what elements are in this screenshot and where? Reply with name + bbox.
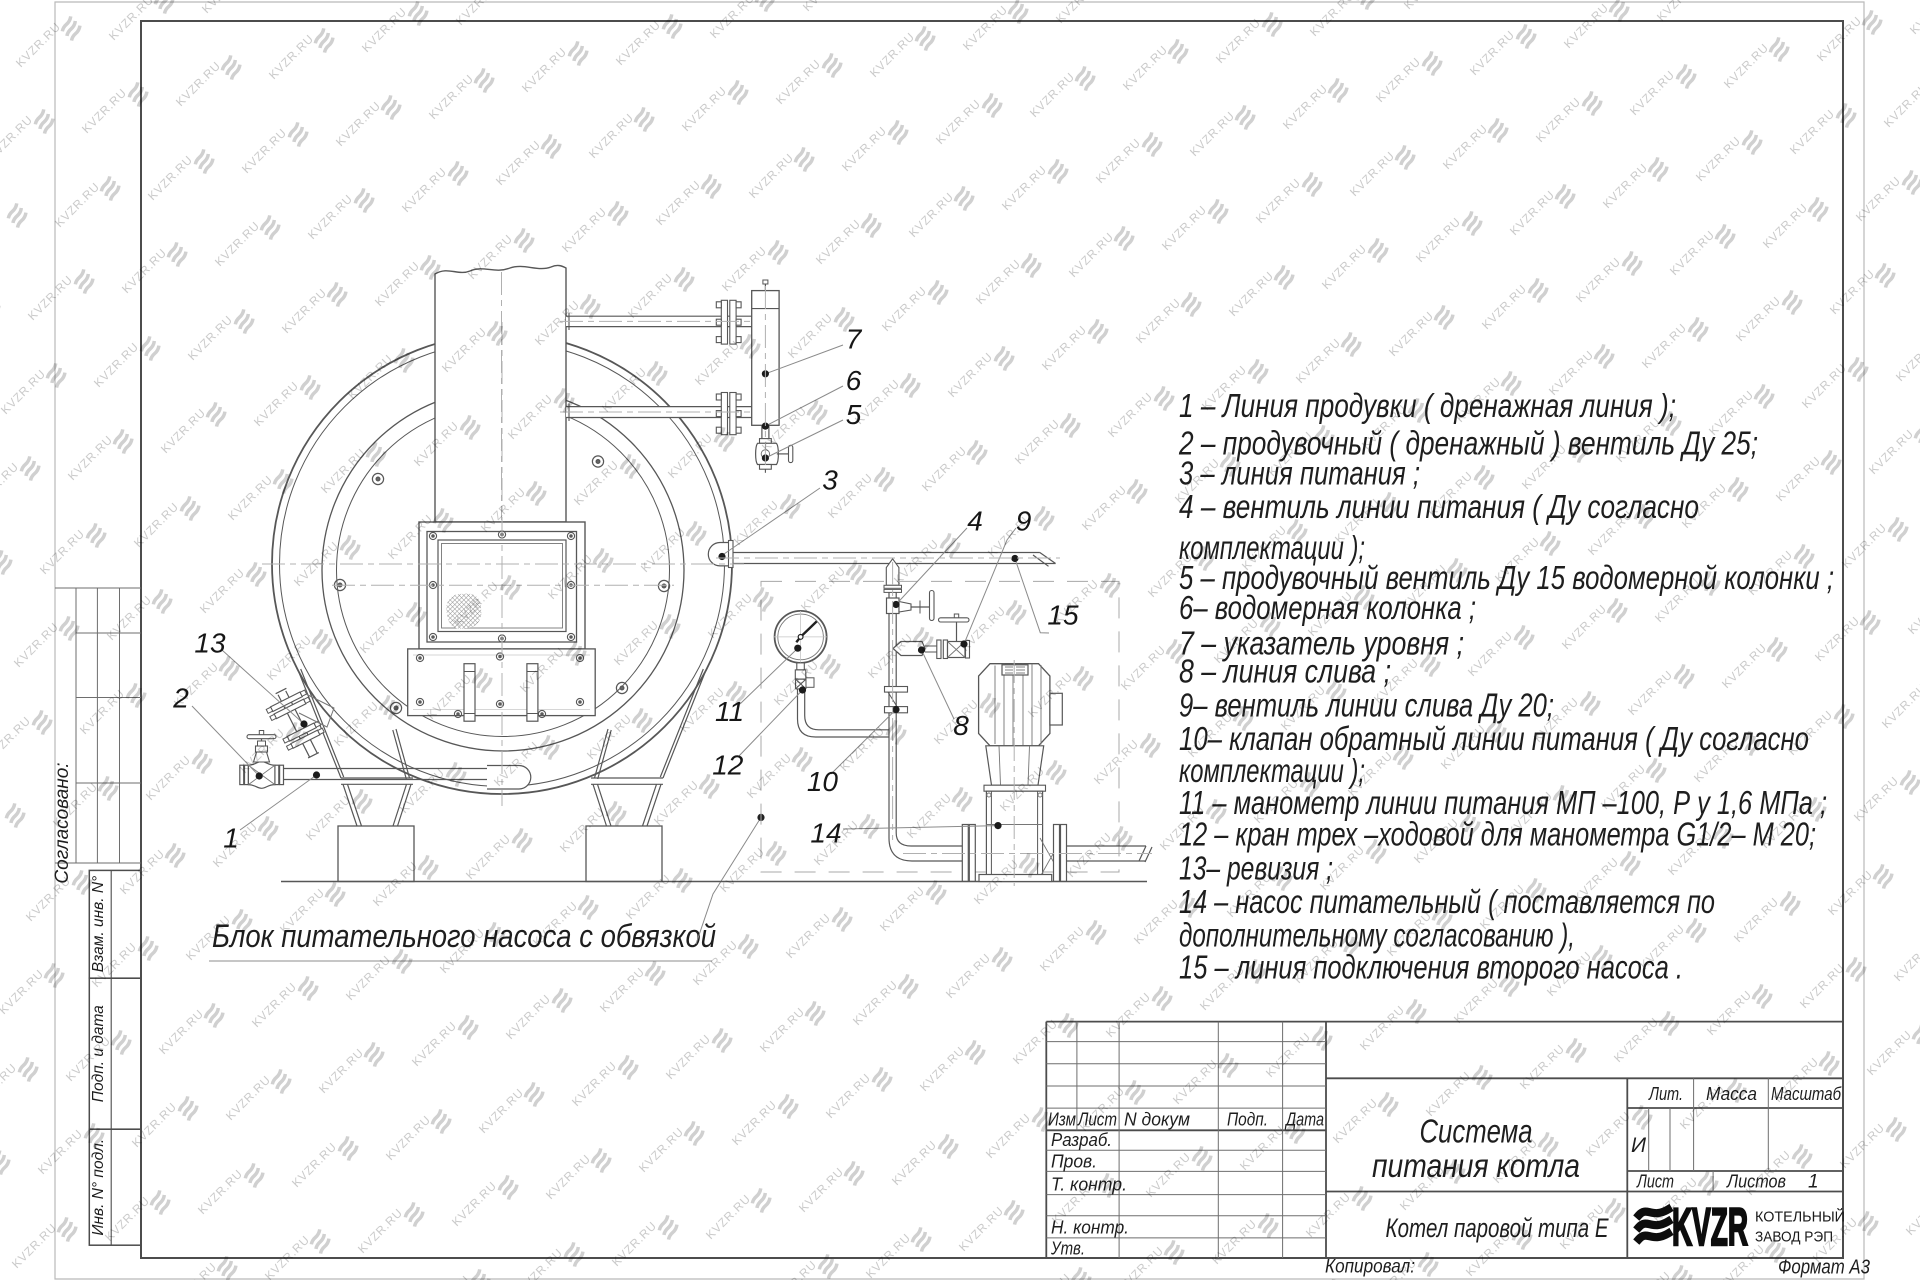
svg-text:13: 13 bbox=[194, 627, 226, 658]
svg-text:И: И bbox=[1631, 1134, 1647, 1157]
svg-text:12 – кран трех –ходовой для: 12 – кран трех –ходовой для манометра G1… bbox=[1179, 816, 1816, 853]
svg-text:N докум: N докум bbox=[1124, 1110, 1190, 1130]
svg-text:Взам. инв. N°: Взам. инв. N° bbox=[90, 876, 107, 972]
svg-text:Подп.: Подп. bbox=[1227, 1110, 1268, 1130]
svg-text:Система: Система bbox=[1420, 1113, 1533, 1150]
svg-text:4: 4 bbox=[967, 505, 983, 536]
svg-text:Изм: Изм bbox=[1048, 1110, 1076, 1130]
svg-text:KVZR: KVZR bbox=[1672, 1198, 1748, 1257]
svg-text:Инв. N° подл.: Инв. N° подл. bbox=[90, 1139, 107, 1236]
svg-text:8 – линия слива ;: 8 – линия слива ; bbox=[1179, 653, 1391, 690]
svg-text:Лист: Лист bbox=[1636, 1172, 1674, 1192]
svg-text:Лит.: Лит. bbox=[1648, 1084, 1683, 1104]
svg-text:1: 1 bbox=[1808, 1172, 1819, 1193]
svg-text:7: 7 bbox=[846, 323, 863, 354]
svg-text:12: 12 bbox=[712, 749, 744, 780]
svg-text:КОТЕЛЬНЫЙ: КОТЕЛЬНЫЙ bbox=[1755, 1208, 1845, 1226]
svg-text:Пров.: Пров. bbox=[1051, 1152, 1097, 1172]
svg-text:Утв.: Утв. bbox=[1050, 1239, 1085, 1259]
svg-text:6: 6 bbox=[846, 365, 862, 396]
svg-text:15 – линия подключения втор: 15 – линия подключения второго насоса . bbox=[1179, 949, 1683, 986]
svg-text:Разраб.: Разраб. bbox=[1051, 1130, 1112, 1150]
svg-text:1 – Линия продувки ( дренажн: 1 – Линия продувки ( дренажная линия ); bbox=[1179, 387, 1676, 424]
svg-text:3: 3 bbox=[822, 464, 838, 495]
svg-text:10: 10 bbox=[807, 766, 839, 797]
